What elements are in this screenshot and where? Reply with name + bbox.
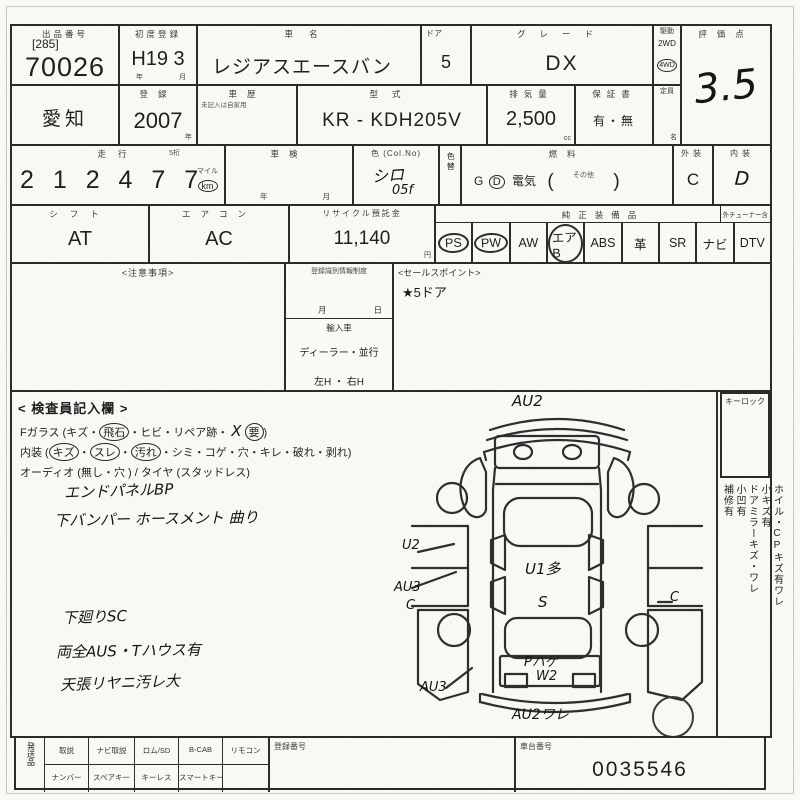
fuel-gasoline: G bbox=[474, 174, 483, 188]
warranty-cell: 保証書 有・無 bbox=[574, 84, 654, 146]
prefecture-cell: 愛知 bbox=[10, 84, 120, 146]
glass-line-text: Fガラス (キズ・ bbox=[20, 427, 99, 439]
color-number: 05f bbox=[392, 183, 413, 198]
prefecture-value: 愛知 bbox=[12, 104, 118, 131]
navi-manual-cell: ナビ取説 bbox=[88, 738, 134, 765]
audio-tire-line: オーディオ (無し・穴 ) / タイヤ (スタッドレス) bbox=[20, 464, 250, 480]
score-label: 評価点 bbox=[682, 26, 770, 40]
exterior-label: 外装 bbox=[674, 146, 712, 159]
sidebar-note: ホイル・CPキズ有ワレ bbox=[770, 484, 783, 732]
shift-value: AT bbox=[12, 228, 148, 251]
history-note: 未記入は自家用 bbox=[201, 99, 247, 109]
equipment-abs: ABS bbox=[590, 236, 615, 250]
interior-grade-cell: 内装 D bbox=[712, 144, 772, 206]
damage-code: C bbox=[670, 590, 679, 605]
history-cell: 車歴 未記入は自家用 bbox=[196, 84, 298, 146]
equipment-ps-circled: PS bbox=[438, 232, 469, 253]
year-char: 年 bbox=[136, 72, 143, 82]
warranty-value: 有・無 bbox=[576, 112, 652, 129]
drive-label: 駆動 bbox=[654, 26, 680, 36]
fuel-other-label: その他 bbox=[573, 172, 594, 179]
key-lock-box: キーロック bbox=[720, 392, 770, 478]
model-code-value: KR - KDH205V bbox=[298, 110, 486, 132]
equipment-item: AW bbox=[509, 223, 546, 263]
fuel-label: 燃料 bbox=[462, 146, 672, 160]
interior-label: 内装 bbox=[714, 146, 770, 159]
color-label: 色 (Col.No) bbox=[354, 146, 438, 159]
equipment-sr: SR bbox=[669, 236, 686, 250]
import-label: 輸入車 bbox=[286, 322, 392, 334]
capacity-unit: 名 bbox=[670, 132, 677, 142]
chassis-number-value: 0035546 bbox=[516, 758, 764, 782]
registration-year-cell: 登録 2007 年 bbox=[118, 84, 198, 146]
exterior-grade-value: C bbox=[674, 170, 712, 190]
capacity-label: 定員 bbox=[654, 86, 680, 96]
first-registration-value: H19 3 bbox=[120, 48, 196, 71]
fuel-electric: 電気 bbox=[512, 174, 536, 188]
rub-circled: スレ bbox=[90, 443, 120, 461]
sidebar-note: 補修有 bbox=[720, 484, 733, 732]
registration-label: 登録 bbox=[120, 86, 196, 100]
lot-number-cell: 出品番号 [285] 70026 bbox=[10, 24, 120, 86]
displacement-value: 2,500 bbox=[488, 108, 574, 131]
aircon-cell: エアコン AC bbox=[148, 204, 290, 264]
shipping-items-label: 発送品 bbox=[24, 742, 37, 786]
damage-code: AU3 bbox=[394, 580, 421, 595]
drive-cell: 駆動 2WD 4WD bbox=[652, 24, 682, 86]
equipment-leather: 革 bbox=[634, 234, 647, 253]
interior-line-text: ・ bbox=[120, 447, 131, 459]
grade-cell: グレード DX bbox=[470, 24, 654, 86]
month-char: 月 bbox=[318, 304, 327, 316]
rom-sd-cell: ロム/SD bbox=[134, 738, 178, 765]
cc-unit: cc bbox=[564, 135, 571, 142]
registration-year-value: 2007 bbox=[120, 108, 196, 134]
inspector-note: エンドパネルBP bbox=[64, 478, 174, 503]
inspector-title: < 検査員記入欄 > bbox=[18, 398, 128, 417]
mile-unit-label: マイル bbox=[197, 166, 218, 176]
equipment-item: DTV bbox=[733, 223, 770, 263]
damage-code: AU3 bbox=[420, 680, 447, 695]
mileage-label: 走行 bbox=[12, 146, 224, 160]
registration-id-box: 登録識別情報制度 月 日 輸入車 ディーラー・並行 左H ・ 右H bbox=[284, 262, 394, 392]
damage-code: U1多 bbox=[525, 558, 561, 579]
color-change-cell: 色替 bbox=[438, 144, 462, 206]
handle-options: 左H ・ 右H bbox=[286, 373, 392, 388]
shaken-label: 車検 bbox=[226, 146, 352, 160]
fuel-diesel-circled: D bbox=[489, 175, 505, 189]
manual-cell: 取説 bbox=[44, 738, 88, 765]
year-char: 年 bbox=[185, 132, 192, 142]
exterior-grade-cell: 外装 C bbox=[672, 144, 714, 206]
car-diagram bbox=[410, 394, 740, 738]
required-circled: 要 bbox=[245, 423, 264, 441]
month-char: 月 bbox=[179, 72, 186, 82]
keyless-cell: キーレス bbox=[134, 765, 178, 792]
aircon-value: AC bbox=[150, 228, 288, 251]
damage-code: W2 bbox=[536, 669, 557, 684]
caution-box: <注意事項> bbox=[10, 262, 286, 392]
chassis-number-label: 車台番号 bbox=[520, 741, 552, 752]
equipment-item: 革 bbox=[621, 223, 658, 263]
mileage-value: 2 1 2 4 7 7 bbox=[20, 166, 204, 195]
month-char: 月 bbox=[323, 191, 331, 202]
grade-label: グレード bbox=[472, 26, 652, 40]
sales-point-label: <セールスポイント> bbox=[398, 266, 481, 279]
scratch-circled: キズ bbox=[49, 443, 79, 461]
model-label: 型式 bbox=[298, 86, 486, 100]
inspector-note: 下バンパー ホースメント 曲り bbox=[54, 506, 259, 531]
equipment-aw: AW bbox=[518, 236, 538, 250]
caution-label: <注意事項> bbox=[12, 264, 284, 279]
score-value: 3.5 bbox=[680, 60, 772, 115]
warranty-label: 保証書 bbox=[576, 86, 652, 100]
paren-close: ) bbox=[613, 171, 619, 192]
auction-sheet: 出品番号 [285] 70026 初度登録 H19 3 年 月 車名 レジアスエ… bbox=[0, 0, 800, 800]
sidebar-notes: ホイル・CPキズ有ワレ 小キズ有 ドアミラーキズ・ワレ 小凹有 補修有 bbox=[720, 484, 783, 732]
km-unit-circled: km bbox=[198, 180, 218, 192]
equipment-item: PW bbox=[471, 223, 508, 263]
interior-check-line: 内装 (キズ・スレ・汚れ・シミ・コゲ・穴・キレ・破れ・剥れ) bbox=[20, 443, 351, 461]
damage-code: AU2 bbox=[512, 392, 543, 410]
sidebar-note: 小凹有 bbox=[733, 484, 746, 732]
year-char: 年 bbox=[260, 191, 268, 202]
b-cas-cell: B-CAB bbox=[178, 738, 222, 765]
registration-id-label: 登録識別情報制度 bbox=[286, 264, 392, 276]
sales-point-box: <セールスポイント> ★5ドア bbox=[392, 262, 772, 392]
equipment-dtv: DTV bbox=[740, 236, 765, 250]
sidebar-note: 小キズ有 bbox=[758, 484, 771, 732]
remote-cell: リモコン bbox=[222, 738, 268, 765]
inspector-section: < 検査員記入欄 > Fガラス (キズ・飛石・ヒビ・リペア跡・X要) 内装 (キ… bbox=[10, 390, 772, 738]
history-label: 車歴 bbox=[198, 86, 296, 100]
smart-key-cell: スマートキー bbox=[178, 765, 222, 792]
empty-cell bbox=[222, 765, 268, 792]
lot-number-label: 出品番号 bbox=[12, 26, 118, 40]
first-registration-cell: 初度登録 H19 3 年 月 bbox=[118, 24, 198, 86]
car-name-value: レジアスエースバン bbox=[212, 52, 392, 79]
aircon-label: エアコン bbox=[150, 206, 288, 220]
glass-line-text: ) bbox=[264, 427, 268, 439]
equipment-pw-circled: PW bbox=[474, 232, 509, 253]
grade-value: DX bbox=[472, 52, 652, 76]
mileage-cell: 走行 5桁 2 1 2 4 7 7 マイル km bbox=[10, 144, 226, 206]
equipment-item: エアB bbox=[546, 223, 583, 263]
drive-4wd-circled: 4WD bbox=[657, 59, 677, 72]
mileage-unit: マイル km bbox=[197, 166, 218, 194]
recycle-value: 11,140 bbox=[290, 228, 434, 250]
interior-line-text: 内装 ( bbox=[20, 447, 49, 459]
registration-number-box: 登録番号 bbox=[268, 738, 514, 792]
shaken-cell: 車検 年 月 bbox=[224, 144, 354, 206]
lot-number-value: 70026 bbox=[12, 52, 118, 83]
interior-line-text: ・シミ・コゲ・穴・キレ・破れ・剥れ) bbox=[161, 447, 352, 459]
chassis-number-box: 車台番号 0035546 bbox=[514, 738, 764, 792]
shift-cell: シフト AT bbox=[10, 204, 150, 264]
right-sidebar: キーロック ホイル・CPキズ有ワレ 小キズ有 ドアミラーキズ・ワレ 小凹有 補修… bbox=[716, 392, 772, 736]
equipment-item: SR bbox=[658, 223, 695, 263]
yen-unit: 円 bbox=[424, 250, 431, 260]
flying-stone-circled: 飛石 bbox=[99, 423, 129, 441]
import-options: ディーラー・並行 bbox=[286, 344, 392, 359]
recycle-label: リサイクル預託金 bbox=[290, 206, 434, 219]
color-change-label: 色替 bbox=[444, 152, 457, 202]
registration-number-label: 登録番号 bbox=[274, 741, 306, 752]
shift-label: シフト bbox=[12, 206, 148, 220]
stamp-circle bbox=[652, 696, 694, 738]
model-code-cell: 型式 KR - KDH205V bbox=[296, 84, 488, 146]
door-label: ドア bbox=[426, 28, 442, 39]
glass-check-line: Fガラス (キズ・飛石・ヒビ・リペア跡・X要) bbox=[20, 422, 267, 441]
inspector-note: 下廻りSC bbox=[62, 605, 128, 628]
damage-code: Pハゲ bbox=[524, 651, 558, 670]
damage-code: U2 bbox=[402, 538, 420, 553]
glass-line-text: ・ヒビ・リペア跡・ bbox=[129, 427, 228, 439]
score-cell: 評価点 3.5 bbox=[680, 24, 772, 146]
equipment-navi: ナビ bbox=[702, 234, 727, 253]
sidebar-note: ドアミラーキズ・ワレ bbox=[745, 484, 758, 732]
equipment-cell: 純正装備品 外チューナー含 PS PW AW エアB ABS 革 SR ナビ D… bbox=[434, 204, 772, 264]
interior-grade-value: D bbox=[713, 167, 770, 192]
bottom-strip: 発送品 取説 ナビ取説 ロム/SD B-CAB リモコン ナンバー スペアキー … bbox=[14, 736, 766, 790]
capacity-cell: 定員 名 bbox=[652, 84, 682, 146]
recycle-deposit-cell: リサイクル預託金 11,140 円 bbox=[288, 204, 436, 264]
car-name-label: 車名 bbox=[198, 26, 420, 40]
lot-bracket: [285] bbox=[32, 37, 59, 51]
door-value: 5 bbox=[422, 52, 470, 73]
first-registration-label: 初度登録 bbox=[120, 26, 196, 40]
inspector-note: 両全AUS・Tハウス有 bbox=[56, 639, 201, 663]
damage-code: S bbox=[538, 593, 548, 611]
car-name-cell: 車名 レジアスエースバン bbox=[196, 24, 422, 86]
tuner-note: 外チューナー含 bbox=[720, 206, 771, 223]
fuel-cell: 燃料 G D 電気 ( その他 ) bbox=[460, 144, 674, 206]
interior-line-text: ・ bbox=[79, 447, 90, 459]
dirt-circled: 汚れ bbox=[131, 443, 161, 461]
displacement-label: 排気量 bbox=[488, 86, 574, 100]
color-cell: 色 (Col.No) シロ 05f bbox=[352, 144, 440, 206]
equipment-item: PS bbox=[436, 223, 471, 263]
equipment-airbag-circled: エアB bbox=[547, 223, 584, 263]
key-lock-label: キーロック bbox=[722, 394, 768, 407]
number-plate-cell: ナンバー bbox=[44, 765, 88, 792]
paren-open: ( bbox=[547, 171, 553, 192]
displacement-cell: 排気量 2,500 cc bbox=[486, 84, 576, 146]
spare-key-cell: スペアキー bbox=[88, 765, 134, 792]
damage-code: C bbox=[406, 598, 415, 613]
day-char: 日 bbox=[373, 304, 382, 316]
equipment-item: ABS bbox=[583, 223, 620, 263]
damage-code: AU2ワレ bbox=[512, 704, 569, 724]
x-mark: X bbox=[231, 422, 241, 440]
drive-2wd: 2WD bbox=[654, 39, 680, 48]
fuel-options: G D 電気 ( その他 ) bbox=[474, 170, 620, 193]
mileage-note: 5桁 bbox=[169, 148, 180, 158]
door-cell: ドア 5 bbox=[420, 24, 472, 86]
inspector-note: 天張リヤニ汚レ大 bbox=[60, 670, 181, 695]
equipment-item: ナビ bbox=[695, 223, 732, 263]
sales-point-value: ★5ドア bbox=[402, 282, 447, 301]
